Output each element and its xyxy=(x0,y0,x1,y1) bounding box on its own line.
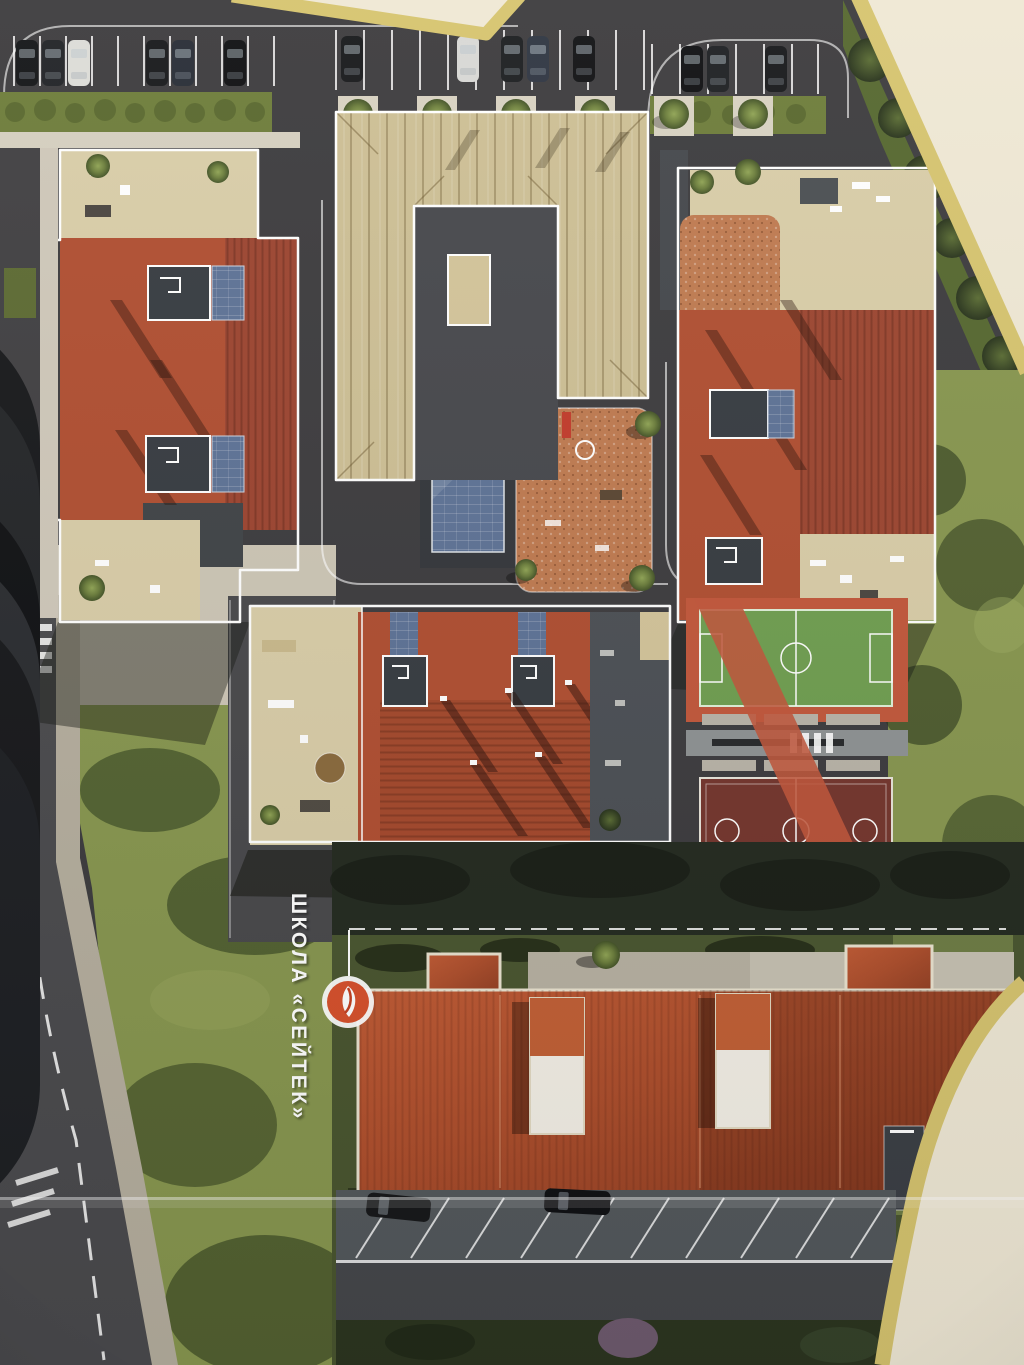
courtyard-annex xyxy=(448,255,490,325)
parked-car xyxy=(172,40,194,86)
skylight-a2 xyxy=(146,436,210,492)
parked-car xyxy=(501,36,523,82)
parked-car xyxy=(457,36,479,82)
parked-car xyxy=(68,40,90,86)
fold-crease xyxy=(0,1197,1024,1208)
solar-panel-a1 xyxy=(212,266,244,320)
parked-car xyxy=(707,46,729,92)
parked-car xyxy=(573,36,595,82)
site-plan-photo: ШКОЛА «СЕЙТЕК» ШКОЛА «СЕЙТЕК» xyxy=(0,0,1024,1365)
parked-car xyxy=(146,40,168,86)
skylight-d1 xyxy=(383,656,427,706)
parked-car xyxy=(42,40,64,86)
school-logo xyxy=(322,976,374,1028)
play-tower xyxy=(562,412,571,438)
parked-car xyxy=(16,40,38,86)
skylight-c1 xyxy=(710,390,768,438)
blossom-tree xyxy=(598,1318,658,1358)
solar-panel-c1 xyxy=(768,390,794,438)
parked-car xyxy=(527,36,549,82)
parked-car xyxy=(681,46,703,92)
building-b-courtyard xyxy=(414,206,558,480)
school-label-text: ШКОЛА «СЕЙТЕК» xyxy=(287,893,311,1121)
parked-car xyxy=(341,36,363,82)
solar-panel-a2 xyxy=(212,436,244,492)
site-plan-svg: ШКОЛА «СЕЙТЕК» ШКОЛА «СЕЙТЕК» xyxy=(0,0,1024,1365)
parked-car xyxy=(224,40,246,86)
parked-car xyxy=(765,46,787,92)
